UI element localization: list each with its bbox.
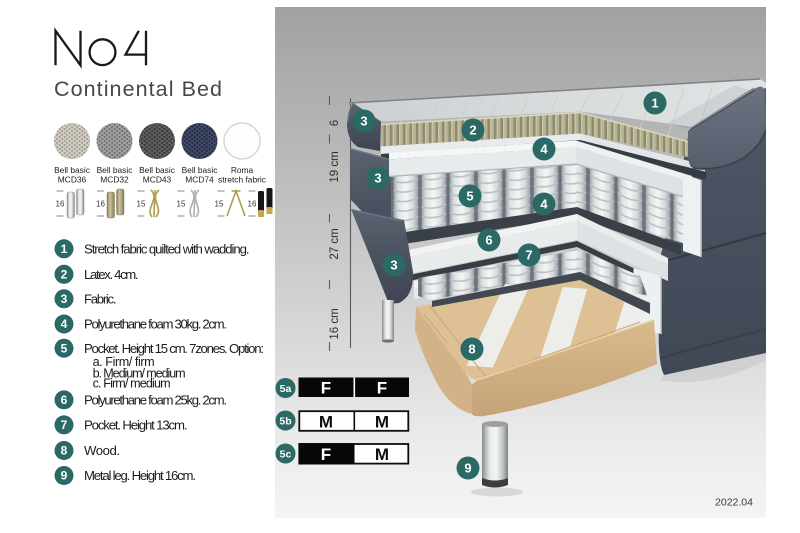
svg-text:MCD43: MCD43: [143, 175, 172, 185]
svg-text:6: 6: [61, 393, 68, 407]
svg-text:19 cm: 19 cm: [329, 151, 341, 182]
svg-text:Roma: Roma: [231, 165, 254, 175]
svg-text:Metal leg. Height 16cm.: Metal leg. Height 16cm.: [84, 468, 196, 483]
svg-text:Bell basic: Bell basic: [97, 165, 133, 175]
svg-text:M: M: [375, 412, 389, 431]
svg-text:2: 2: [61, 268, 68, 282]
svg-text:F: F: [377, 379, 387, 398]
svg-text:16 cm: 16 cm: [329, 308, 341, 339]
svg-text:3: 3: [390, 258, 397, 273]
svg-text:7: 7: [525, 248, 532, 263]
svg-text:15: 15: [215, 200, 224, 209]
svg-text:MCD32: MCD32: [100, 175, 129, 185]
svg-text:9: 9: [464, 461, 471, 476]
svg-text:7: 7: [61, 418, 68, 432]
svg-text:16: 16: [96, 200, 105, 209]
svg-text:MCD74: MCD74: [185, 175, 214, 185]
svg-text:F: F: [321, 379, 331, 398]
svg-text:Wood.: Wood.: [84, 443, 120, 458]
svg-text:Latex. 4cm.: Latex. 4cm.: [84, 267, 139, 282]
svg-text:2022.04: 2022.04: [715, 497, 753, 509]
svg-text:3: 3: [374, 171, 381, 186]
svg-text:5: 5: [61, 341, 68, 355]
svg-text:Polyurethane foam 30kg. 2cm.: Polyurethane foam 30kg. 2cm.: [84, 317, 227, 332]
svg-text:Stretch fabric quilted with wa: Stretch fabric quilted with wadding.: [84, 242, 250, 257]
svg-text:Pocket. Height 13cm.: Pocket. Height 13cm.: [84, 418, 188, 433]
svg-text:M: M: [319, 412, 333, 431]
svg-text:9: 9: [61, 469, 68, 483]
svg-text:5: 5: [466, 189, 473, 204]
svg-text:4: 4: [540, 197, 548, 212]
svg-text:Polyurethane foam 25kg. 2cm.: Polyurethane foam 25kg. 2cm.: [84, 393, 227, 408]
svg-text:15: 15: [177, 200, 186, 209]
svg-text:Fabric.: Fabric.: [84, 292, 117, 307]
svg-text:8: 8: [468, 342, 475, 357]
svg-text:Bell basic: Bell basic: [139, 165, 175, 175]
svg-text:27 cm: 27 cm: [329, 228, 341, 259]
svg-text:stretch fabric: stretch fabric: [218, 175, 266, 185]
svg-text:3: 3: [61, 292, 68, 306]
svg-text:15: 15: [137, 200, 146, 209]
svg-text:16: 16: [56, 200, 65, 209]
svg-text:Bell basic: Bell basic: [54, 165, 90, 175]
svg-text:5c: 5c: [280, 448, 292, 460]
svg-text:6: 6: [485, 233, 492, 248]
svg-text:3: 3: [360, 114, 367, 129]
svg-text:Pocket. Height 15 cm. 7zones.: Pocket. Height 15 cm. 7zones. Option:: [84, 341, 264, 356]
svg-text:2: 2: [469, 123, 476, 138]
svg-text:1: 1: [61, 242, 68, 256]
svg-text:1: 1: [651, 96, 658, 111]
svg-text:Continental Bed: Continental Bed: [54, 77, 222, 101]
svg-text:6: 6: [329, 120, 341, 126]
svg-text:MCD36: MCD36: [58, 175, 87, 185]
svg-text:F: F: [321, 445, 331, 464]
svg-text:c. Firm/ medium: c. Firm/ medium: [93, 377, 171, 391]
svg-text:Bell basic: Bell basic: [182, 165, 218, 175]
svg-text:16: 16: [248, 200, 257, 209]
svg-text:8: 8: [61, 444, 68, 458]
svg-text:4: 4: [540, 142, 548, 157]
svg-text:5a: 5a: [280, 383, 292, 395]
svg-text:5b: 5b: [279, 415, 291, 427]
svg-text:4: 4: [61, 317, 68, 331]
svg-text:M: M: [375, 445, 389, 464]
